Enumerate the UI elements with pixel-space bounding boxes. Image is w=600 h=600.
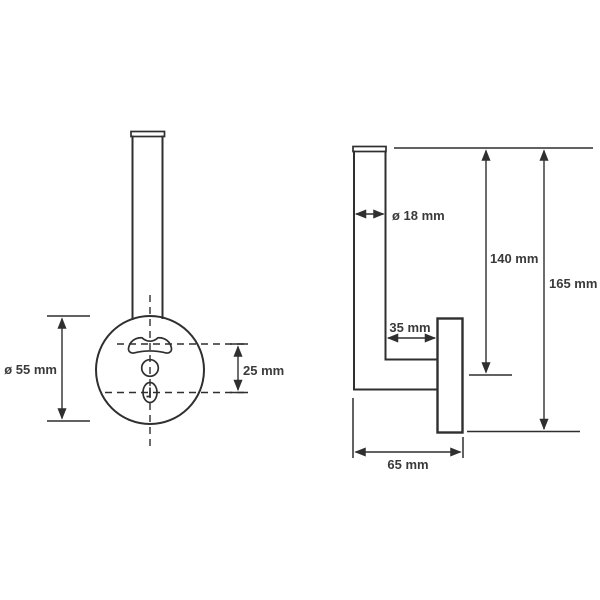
drawing-svg: ø 55 mm 25 mm ø 18 mm 140 mm xyxy=(0,0,600,600)
tube-diameter-label: ø 18 mm xyxy=(392,208,445,223)
height-165-label: 165 mm xyxy=(549,276,597,291)
side-arm xyxy=(354,360,437,390)
front-tube-body xyxy=(133,137,163,320)
hole-offset-label: 25 mm xyxy=(243,363,284,378)
front-view: ø 55 mm 25 mm xyxy=(4,132,284,448)
side-view: ø 18 mm 140 mm 165 mm 35 mm 65 mm xyxy=(353,147,597,473)
front-tube-cap xyxy=(131,132,165,137)
gap-35-label: 35 mm xyxy=(389,320,430,335)
depth-65-label: 65 mm xyxy=(387,457,428,472)
side-tube-body xyxy=(354,152,386,390)
technical-drawing: ø 55 mm 25 mm ø 18 mm 140 mm xyxy=(0,0,600,600)
depth-65-extension-lines xyxy=(353,398,463,458)
side-tube-cap xyxy=(353,147,386,152)
plate-diameter-label: ø 55 mm xyxy=(4,362,57,377)
height-140-label: 140 mm xyxy=(490,251,538,266)
side-wall-plate xyxy=(438,319,463,433)
